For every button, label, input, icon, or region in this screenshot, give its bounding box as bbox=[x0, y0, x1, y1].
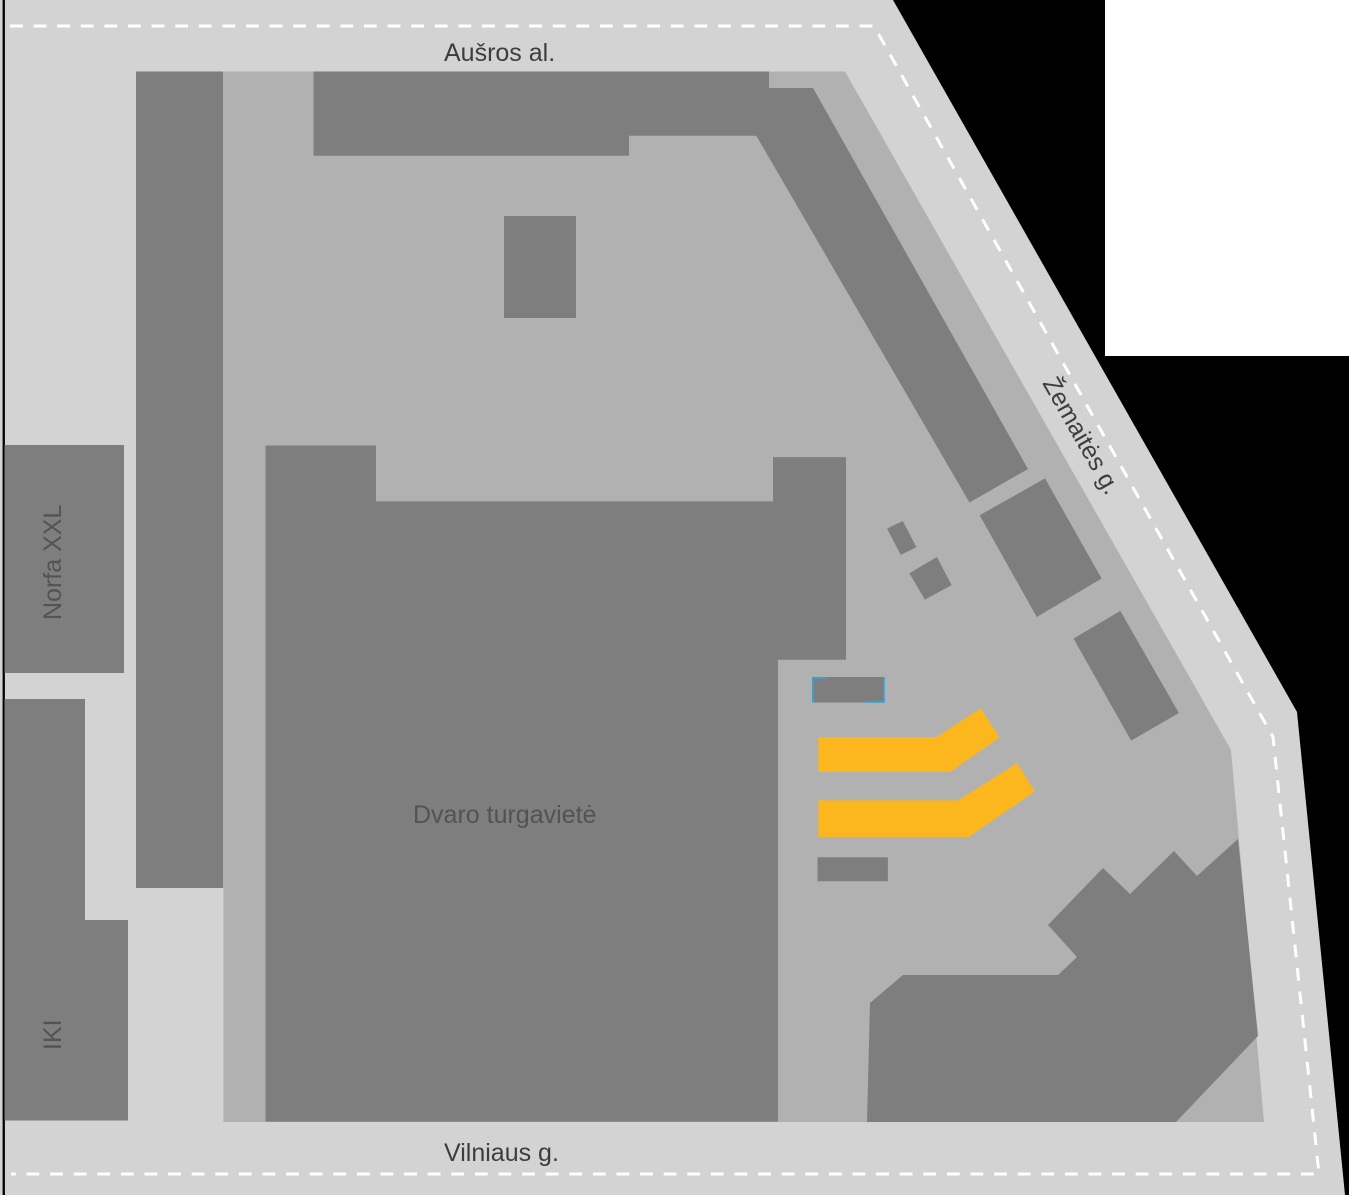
svg-text:Aušros al.: Aušros al. bbox=[444, 39, 555, 67]
svg-text:Vilniaus g.: Vilniaus g. bbox=[444, 1139, 559, 1167]
svg-text:Dvaro turgavietė: Dvaro turgavietė bbox=[413, 801, 596, 829]
svg-text:IKI: IKI bbox=[39, 1019, 67, 1050]
svg-text:Norfa XXL: Norfa XXL bbox=[39, 505, 67, 620]
